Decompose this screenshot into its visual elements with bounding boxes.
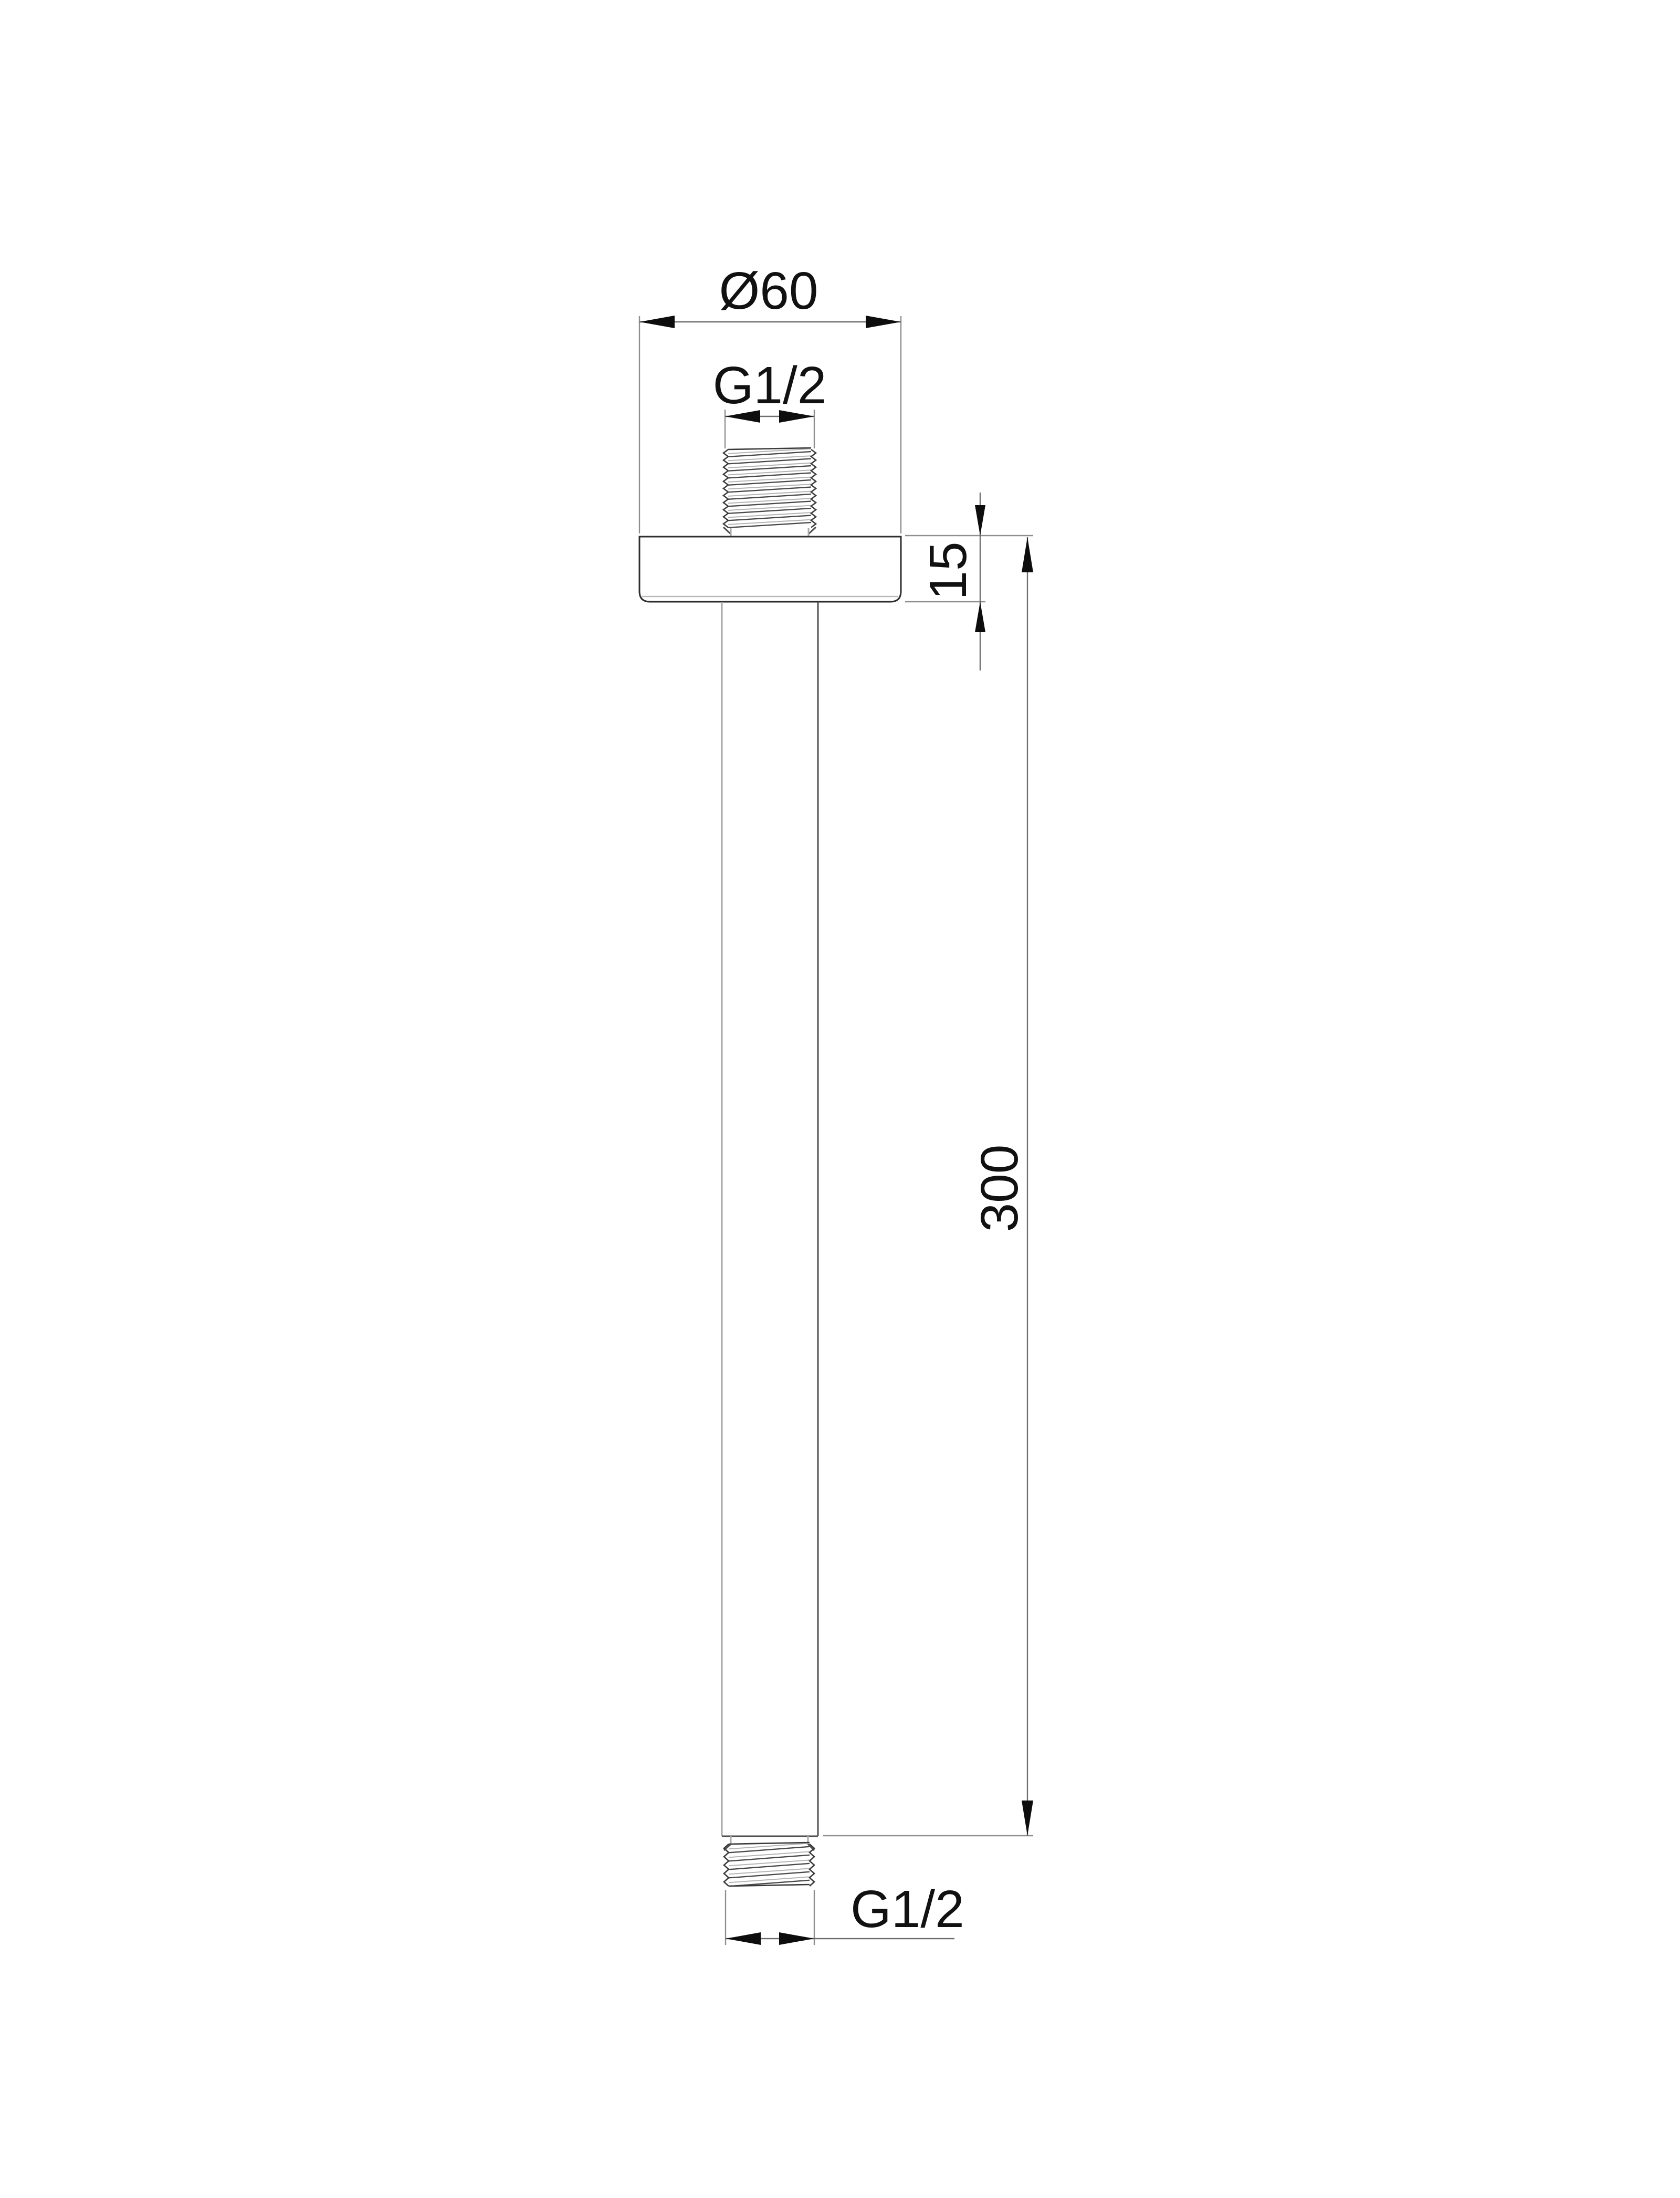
thread-top-label: G1/2 [713, 356, 827, 415]
thread-line [729, 1855, 810, 1861]
arrowhead-left [639, 316, 675, 328]
dim-arm-length: 300 [823, 537, 1033, 1836]
thread-line [729, 1847, 810, 1853]
arrowhead-right [866, 316, 901, 328]
thread-line [729, 1872, 810, 1878]
technical-drawing: Ø60 G1/2 [0, 0, 1680, 2198]
thread-top-neck [723, 527, 816, 536]
arrowhead-up [975, 602, 985, 632]
arrowhead-down [1022, 1801, 1033, 1836]
diameter-label: Ø60 [719, 261, 818, 320]
arrowhead-left [726, 1932, 761, 1945]
plate-thickness-label: 15 [919, 541, 978, 600]
thread-line [729, 1864, 810, 1870]
thread-edge [723, 449, 728, 528]
shower-arm-pipe [722, 602, 818, 1836]
dim-plate-thickness: 15 [905, 493, 1033, 671]
dim-thread-bottom: G1/2 [726, 1880, 964, 1945]
flange-outline [639, 537, 901, 602]
thread-top [723, 448, 816, 528]
drawing-page: Ø60 G1/2 [0, 0, 1680, 2198]
thread-bottom [724, 1843, 814, 1886]
thread-bottom-label: G1/2 [850, 1880, 964, 1939]
arrowhead-up [1022, 537, 1033, 572]
arrowhead-down [975, 505, 985, 536]
flange-plate [639, 537, 901, 602]
thread-flare [723, 527, 731, 534]
thread-edge [811, 449, 816, 528]
arm-length-label: 300 [970, 1145, 1029, 1232]
arrowhead-right [779, 1932, 814, 1945]
thread-flare [808, 527, 816, 534]
dim-thread-top: G1/2 [713, 356, 827, 448]
